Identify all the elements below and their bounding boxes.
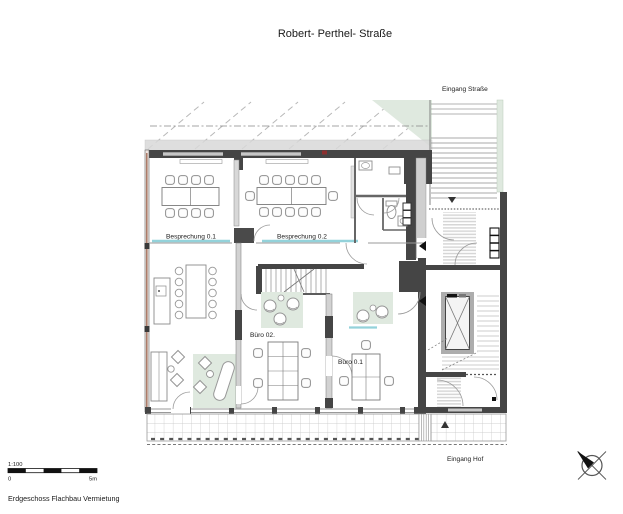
entry-mat (437, 377, 461, 408)
room-buero-01: Büro 0.1 (325, 261, 421, 408)
scale-max: 5m (89, 477, 97, 483)
room-label-buero-01: Büro 0.1 (338, 359, 363, 366)
entry-mat (443, 212, 476, 265)
north-compass-icon (577, 451, 606, 480)
door-swing (241, 294, 257, 310)
label-eingang-strasse: Eingang Straße (442, 86, 488, 93)
internal-stair (262, 269, 330, 294)
scale-zero: 0 (8, 477, 11, 483)
partition-wall (234, 160, 239, 226)
wall-segment (234, 228, 254, 243)
door-swing (173, 392, 190, 409)
door-swing (241, 387, 258, 404)
urinal (389, 167, 400, 174)
door-swing (357, 198, 374, 215)
door-swing (474, 377, 497, 400)
stair-direction-arrow-icon (448, 197, 456, 203)
sheet-title: Robert- Perthel- Straße (278, 28, 392, 40)
high-table (186, 265, 206, 318)
door-swing (398, 292, 420, 314)
terrace-paving (147, 414, 507, 445)
wc-area (355, 158, 411, 243)
elevator (441, 292, 474, 354)
room-label-besprechung-01: Besprechung 0.1 (166, 234, 216, 241)
door-swing (254, 225, 270, 241)
door-swing (346, 243, 367, 264)
wall-segment (399, 261, 421, 292)
lounge-area (151, 350, 238, 408)
room-label-besprechung-02: Besprechung 0.2 (277, 234, 327, 241)
kitchen-area (154, 265, 216, 324)
entrance-core (419, 192, 507, 413)
street-entrance-stairs (430, 100, 503, 205)
room-besprechung-01: Besprechung 0.1 (152, 160, 230, 242)
floorplan-sheet: Robert- Perthel- Straße (0, 0, 623, 514)
sheet-caption: Erdgeschoss Flachbau Vermietung (8, 494, 119, 503)
floor-plan-drawing: Robert- Perthel- Straße (0, 0, 623, 514)
canopy-band (145, 140, 432, 150)
scale-bar: 1:100 0 5m (8, 462, 97, 483)
kitchen-counter (154, 278, 170, 324)
terrace-steps (419, 414, 431, 441)
scale-ratio: 1:100 (8, 462, 23, 468)
planting-strip (497, 100, 503, 192)
label-eingang-hof: Eingang Hof (447, 456, 483, 463)
room-label-buero-02: Büro 02. (250, 332, 275, 339)
